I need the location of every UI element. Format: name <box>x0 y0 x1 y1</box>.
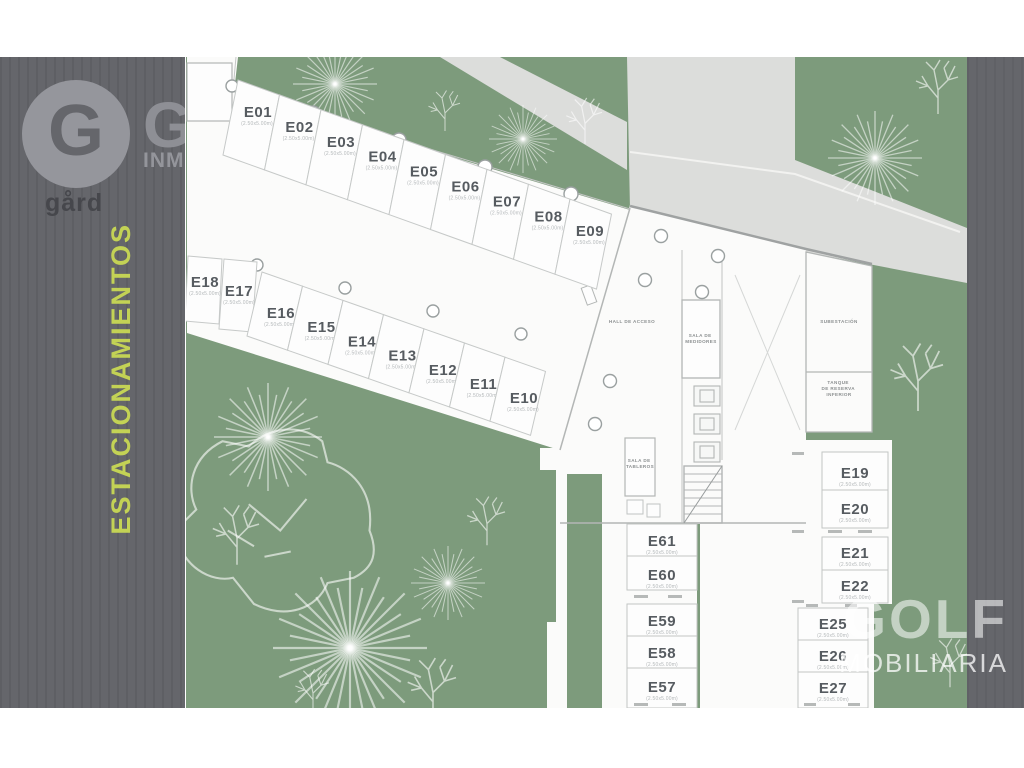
svg-text:E20: E20 <box>841 501 869 518</box>
tableros-label: SALA DE TABLEROS <box>626 458 654 469</box>
svg-text:(2.50x5.00m): (2.50x5.00m) <box>241 121 273 127</box>
svg-text:(2.50x5.00m): (2.50x5.00m) <box>573 240 605 246</box>
svg-text:(2.50x5.00m): (2.50x5.00m) <box>490 210 522 216</box>
svg-text:E60: E60 <box>648 567 676 584</box>
svg-text:(2.50x5.00m): (2.50x5.00m) <box>646 550 678 556</box>
elevator-icons <box>694 386 720 462</box>
svg-text:(2.50x5.00m): (2.50x5.00m) <box>839 482 871 488</box>
svg-text:(2.50x5.00m): (2.50x5.00m) <box>366 166 398 172</box>
svg-text:(2.50x5.00m): (2.50x5.00m) <box>646 584 678 590</box>
svg-text:E05: E05 <box>410 164 438 181</box>
svg-text:(2.50x5.00m): (2.50x5.00m) <box>283 136 315 142</box>
svg-text:E27: E27 <box>819 680 847 697</box>
svg-text:(2.50x5.00m): (2.50x5.00m) <box>839 562 871 568</box>
svg-text:E57: E57 <box>648 679 676 696</box>
toilet-icon <box>627 500 643 514</box>
svg-text:E21: E21 <box>841 545 869 562</box>
svg-text:(2.50x5.00m): (2.50x5.00m) <box>386 365 418 371</box>
svg-text:E02: E02 <box>285 119 313 136</box>
svg-text:(2.50x5.00m): (2.50x5.00m) <box>305 336 337 342</box>
parking-spot: E18(2.50x5.00m) <box>186 256 222 324</box>
svg-text:(2.50x5.00m): (2.50x5.00m) <box>264 322 296 328</box>
page-title: ESTACIONAMIENTOS <box>106 223 137 535</box>
svg-text:(2.50x5.00m): (2.50x5.00m) <box>345 350 377 356</box>
svg-text:(2.50x5.00m): (2.50x5.00m) <box>646 630 678 636</box>
partial-watermark-text: INMOBILIARIA <box>143 149 185 173</box>
svg-text:E11: E11 <box>470 376 497 393</box>
svg-text:E13: E13 <box>388 348 416 365</box>
svg-text:E15: E15 <box>307 319 335 336</box>
hall-label: HALL DE ACCESO <box>609 319 655 324</box>
svg-text:E17: E17 <box>225 283 253 300</box>
svg-text:(2.50x5.00m): (2.50x5.00m) <box>223 300 255 306</box>
golf-watermark-line1: GOLF <box>839 592 1008 647</box>
svg-text:(2.50x5.00m): (2.50x5.00m) <box>839 518 871 524</box>
svg-text:(2.50x5.00m): (2.50x5.00m) <box>507 407 539 413</box>
svg-text:E03: E03 <box>327 134 355 151</box>
gard-logo-letter: G <box>48 95 104 167</box>
partial-watermark-letter: G <box>143 93 185 157</box>
svg-text:E16: E16 <box>267 305 295 322</box>
svg-text:E10: E10 <box>510 390 538 407</box>
golf-watermark: GOLF MOBILIARIA <box>839 592 1008 676</box>
svg-text:E59: E59 <box>648 613 676 630</box>
toilet-icon-2 <box>647 504 660 517</box>
floorplan-page: G gård G INMOBILIARIA ESTACIONAMIENTOS <box>0 0 1024 768</box>
svg-text:E18: E18 <box>191 274 219 291</box>
svg-text:E01: E01 <box>244 104 272 121</box>
svg-text:E14: E14 <box>348 333 376 350</box>
svg-text:(2.50x5.00m): (2.50x5.00m) <box>189 291 221 297</box>
svg-text:E12: E12 <box>429 362 457 379</box>
svg-text:(2.50x5.00m): (2.50x5.00m) <box>407 181 439 187</box>
svg-text:(2.50x5.00m): (2.50x5.00m) <box>817 697 849 703</box>
svg-text:E04: E04 <box>368 149 396 166</box>
svg-text:(2.50x5.00m): (2.50x5.00m) <box>646 662 678 668</box>
svg-text:E09: E09 <box>576 223 604 240</box>
gard-logo-name: gård <box>45 189 103 218</box>
svg-text:E58: E58 <box>648 645 676 662</box>
medidores-label: SALA DE MEDIDORES <box>685 333 716 344</box>
svg-text:E07: E07 <box>493 193 521 210</box>
svg-text:(2.50x5.00m): (2.50x5.00m) <box>646 696 678 702</box>
svg-text:E08: E08 <box>534 208 562 225</box>
svg-text:(2.50x5.00m): (2.50x5.00m) <box>467 393 499 399</box>
svg-text:(2.50x5.00m): (2.50x5.00m) <box>532 225 564 231</box>
gard-logo-icon: G <box>22 80 130 188</box>
svg-text:E61: E61 <box>648 533 676 550</box>
svg-text:E19: E19 <box>841 465 869 482</box>
golf-watermark-line2: MOBILIARIA <box>839 650 1008 676</box>
svg-text:E06: E06 <box>451 179 479 196</box>
svg-text:(2.50x5.00m): (2.50x5.00m) <box>449 196 481 202</box>
left-sidebar: G gård G INMOBILIARIA ESTACIONAMIENTOS <box>0 57 185 708</box>
subestacion-label: SUBESTACIÓN <box>820 317 858 324</box>
svg-text:(2.50x5.00m): (2.50x5.00m) <box>324 151 356 157</box>
svg-text:(2.50x5.00m): (2.50x5.00m) <box>426 379 458 385</box>
